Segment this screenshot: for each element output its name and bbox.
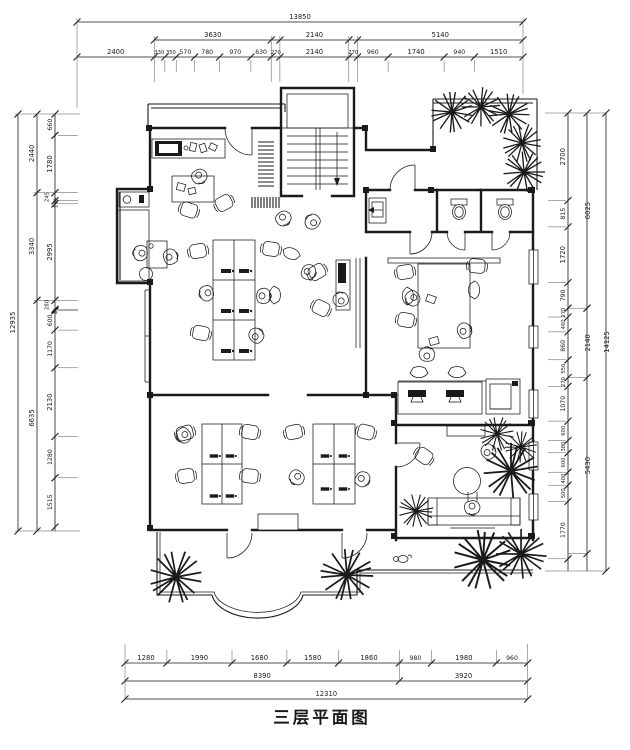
dimension-chain-left: 12935 2440 3340 6635 660 1780 245 100 29… xyxy=(9,111,80,535)
plant xyxy=(393,488,438,533)
dim-label: 12310 xyxy=(315,690,337,698)
dim-label: 860 xyxy=(560,340,567,352)
chair xyxy=(394,311,417,328)
computer-desk xyxy=(398,382,482,414)
keyboard xyxy=(239,269,252,273)
dim-label: 280 xyxy=(45,300,51,310)
dim-label: 13850 xyxy=(289,13,311,21)
toilet-fixture xyxy=(451,199,467,220)
terrace xyxy=(151,521,551,618)
dim-label: 8390 xyxy=(254,672,271,680)
person-figure xyxy=(455,321,474,341)
keyboard xyxy=(321,487,332,490)
dim-label: 1170 xyxy=(47,341,54,357)
keyboard xyxy=(339,487,350,490)
person-figure xyxy=(190,167,210,186)
monitor xyxy=(338,263,346,283)
plant xyxy=(503,124,540,161)
dim-label: 600 xyxy=(561,426,567,436)
dim-label: 780 xyxy=(201,49,213,56)
chair xyxy=(410,367,428,378)
dim-label: 600 xyxy=(47,314,54,326)
lower-workstations xyxy=(173,423,378,530)
dim-label: 45 xyxy=(54,308,60,315)
lounge xyxy=(393,418,544,534)
keyboard xyxy=(221,309,234,313)
dim-label: 1280 xyxy=(137,654,154,662)
dim-label: 1510 xyxy=(490,48,507,56)
keyboard xyxy=(221,269,234,273)
keyboard xyxy=(210,494,221,497)
dim-label: 330 xyxy=(154,50,164,56)
monitor xyxy=(446,390,464,402)
plant xyxy=(481,418,514,451)
dim-label: 2140 xyxy=(584,334,592,351)
dim-label: 980 xyxy=(409,655,421,662)
dimension-chain-bottom: 1280 1990 1680 1580 1860 980 1980 960 83… xyxy=(122,644,532,703)
person-figure xyxy=(302,211,323,232)
dim-label: 1980 xyxy=(455,654,472,662)
dim-label: 790 xyxy=(560,289,567,301)
dim-label: 270 xyxy=(271,50,281,56)
dim-label: 815 xyxy=(560,208,567,220)
bay-counter xyxy=(118,210,149,281)
dim-label: 3340 xyxy=(28,238,36,255)
floor-plan-drawing: 13850 3630 2140 5140 2400 330 350 570 78… xyxy=(0,0,630,750)
person-figure xyxy=(286,467,307,488)
dim-label: 1780 xyxy=(46,155,54,172)
dim-label: 1860 xyxy=(360,654,377,662)
person-figure xyxy=(273,208,294,228)
dim-label: 1720 xyxy=(559,246,567,263)
planter-box xyxy=(258,514,298,530)
chair xyxy=(309,297,334,319)
dim-label: 2400 xyxy=(107,48,124,56)
conference-office xyxy=(394,258,488,362)
dim-label: 100 xyxy=(54,198,60,208)
conference-table xyxy=(418,264,470,348)
chair xyxy=(186,242,209,259)
computer-nook xyxy=(398,367,520,415)
chair xyxy=(260,241,283,258)
dim-label: 5430 xyxy=(584,457,592,474)
chair xyxy=(175,468,198,485)
reception-desk xyxy=(147,241,167,268)
dimension-chain-right: 14125 6025 2140 5430 2700 815 1720 790 2… xyxy=(545,110,611,575)
staircase xyxy=(252,88,354,208)
keyboard xyxy=(221,349,234,353)
dim-label: 2995 xyxy=(46,243,54,260)
chair xyxy=(354,423,378,442)
dim-label: 1770 xyxy=(560,522,567,538)
person-figure xyxy=(255,287,272,305)
toilet-fixture xyxy=(497,199,513,220)
dim-label: 2140 xyxy=(306,31,323,39)
dim-label: 3630 xyxy=(204,31,221,39)
person-figure xyxy=(299,262,319,283)
chair xyxy=(402,287,413,305)
chair xyxy=(394,264,417,281)
console-table xyxy=(447,426,485,436)
dim-label: 3920 xyxy=(455,672,472,680)
person-figure xyxy=(198,285,215,303)
dim-label: 940 xyxy=(453,49,465,56)
chair xyxy=(282,423,305,441)
dim-label: 570 xyxy=(179,49,191,56)
keyboard xyxy=(226,454,237,457)
dim-label: 660 xyxy=(47,119,54,131)
dim-label: 12935 xyxy=(9,312,17,334)
keyboard xyxy=(226,494,237,497)
keyboard xyxy=(210,454,221,457)
dim-label: 550 xyxy=(561,364,567,374)
person-figure xyxy=(173,425,193,446)
dim-label: 1580 xyxy=(304,654,321,662)
chair xyxy=(189,324,212,342)
person-figure xyxy=(246,325,267,346)
person-figure xyxy=(131,244,148,262)
dim-label: 630 xyxy=(255,49,267,56)
dim-label: 960 xyxy=(367,49,379,56)
dim-label: 350 xyxy=(166,50,176,56)
stair-hatch xyxy=(252,142,279,208)
dim-label: 380 xyxy=(561,442,567,452)
dim-label: 270 xyxy=(561,308,567,318)
dim-label: 6025 xyxy=(584,202,592,219)
dim-label: 600 xyxy=(561,458,567,468)
dim-label: 2140 xyxy=(306,48,323,56)
keyboard xyxy=(321,454,332,457)
dim-label: 270 xyxy=(561,377,567,387)
exterior-walls xyxy=(117,99,537,540)
chair xyxy=(448,367,466,378)
dim-label: 14125 xyxy=(603,331,611,353)
dim-label: 1990 xyxy=(191,654,208,662)
dim-label: 1280 xyxy=(47,449,54,465)
person-figure xyxy=(478,441,498,462)
dim-label: 1070 xyxy=(560,396,567,412)
dim-label: 1515 xyxy=(47,494,54,510)
dim-label: 1740 xyxy=(407,48,424,56)
plant xyxy=(491,524,550,583)
keyboard xyxy=(239,309,252,313)
drawing-title: 三层平面图 xyxy=(273,708,371,727)
dim-label: 460 xyxy=(561,319,567,329)
interior-walls xyxy=(145,190,533,395)
dim-label: 960 xyxy=(506,655,518,662)
toilet-area xyxy=(368,198,513,223)
pet-figure xyxy=(394,555,412,563)
monitor xyxy=(408,390,426,402)
cad-sheet: 13850 3630 2140 5140 2400 330 350 570 78… xyxy=(0,0,630,750)
dim-label: 2700 xyxy=(559,148,567,165)
chair xyxy=(177,200,201,220)
dim-label: 6635 xyxy=(28,409,36,426)
dim-label: 5140 xyxy=(432,31,449,39)
garden-plants xyxy=(427,84,550,197)
dim-label: 245 xyxy=(45,192,51,202)
dim-label: 500 xyxy=(561,488,567,498)
central-workstations xyxy=(131,208,350,360)
dim-label: 1680 xyxy=(251,654,268,662)
keyboard xyxy=(339,454,350,457)
person-figure xyxy=(465,501,480,516)
chair xyxy=(411,444,436,468)
chair xyxy=(211,192,236,214)
person-figure xyxy=(332,291,350,308)
plant xyxy=(311,539,382,610)
person-figure xyxy=(352,469,373,490)
dim-label: 2440 xyxy=(28,145,36,162)
chair xyxy=(281,245,302,262)
keyboard xyxy=(239,349,252,353)
dim-label: 2130 xyxy=(46,393,54,410)
dim-label: 970 xyxy=(229,49,241,56)
dim-label: 270 xyxy=(348,50,358,56)
round-table xyxy=(454,468,481,495)
dim-label: 400 xyxy=(561,474,567,484)
person-figure xyxy=(162,248,179,266)
sofa xyxy=(428,498,520,528)
